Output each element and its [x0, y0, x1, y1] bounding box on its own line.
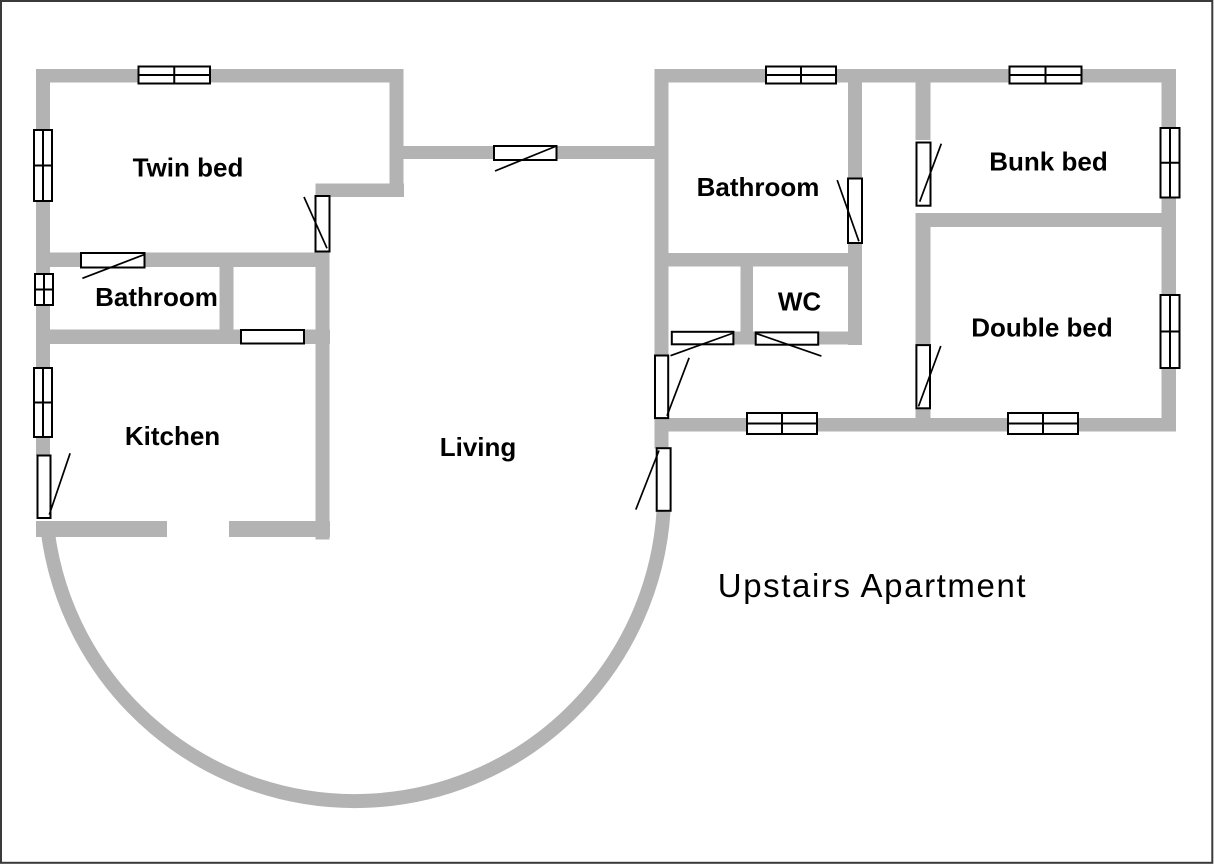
svg-text:Bunk bed: Bunk bed: [989, 147, 1107, 177]
svg-text:Kitchen: Kitchen: [125, 421, 220, 451]
svg-text:Bathroom: Bathroom: [697, 172, 820, 202]
svg-text:WC: WC: [778, 287, 822, 317]
svg-text:Living: Living: [440, 432, 517, 462]
svg-text:Upstairs Apartment: Upstairs Apartment: [718, 567, 1027, 604]
svg-text:Bathroom: Bathroom: [95, 282, 218, 312]
svg-text:Twin bed: Twin bed: [133, 153, 244, 183]
svg-text:Double bed: Double bed: [971, 313, 1113, 343]
